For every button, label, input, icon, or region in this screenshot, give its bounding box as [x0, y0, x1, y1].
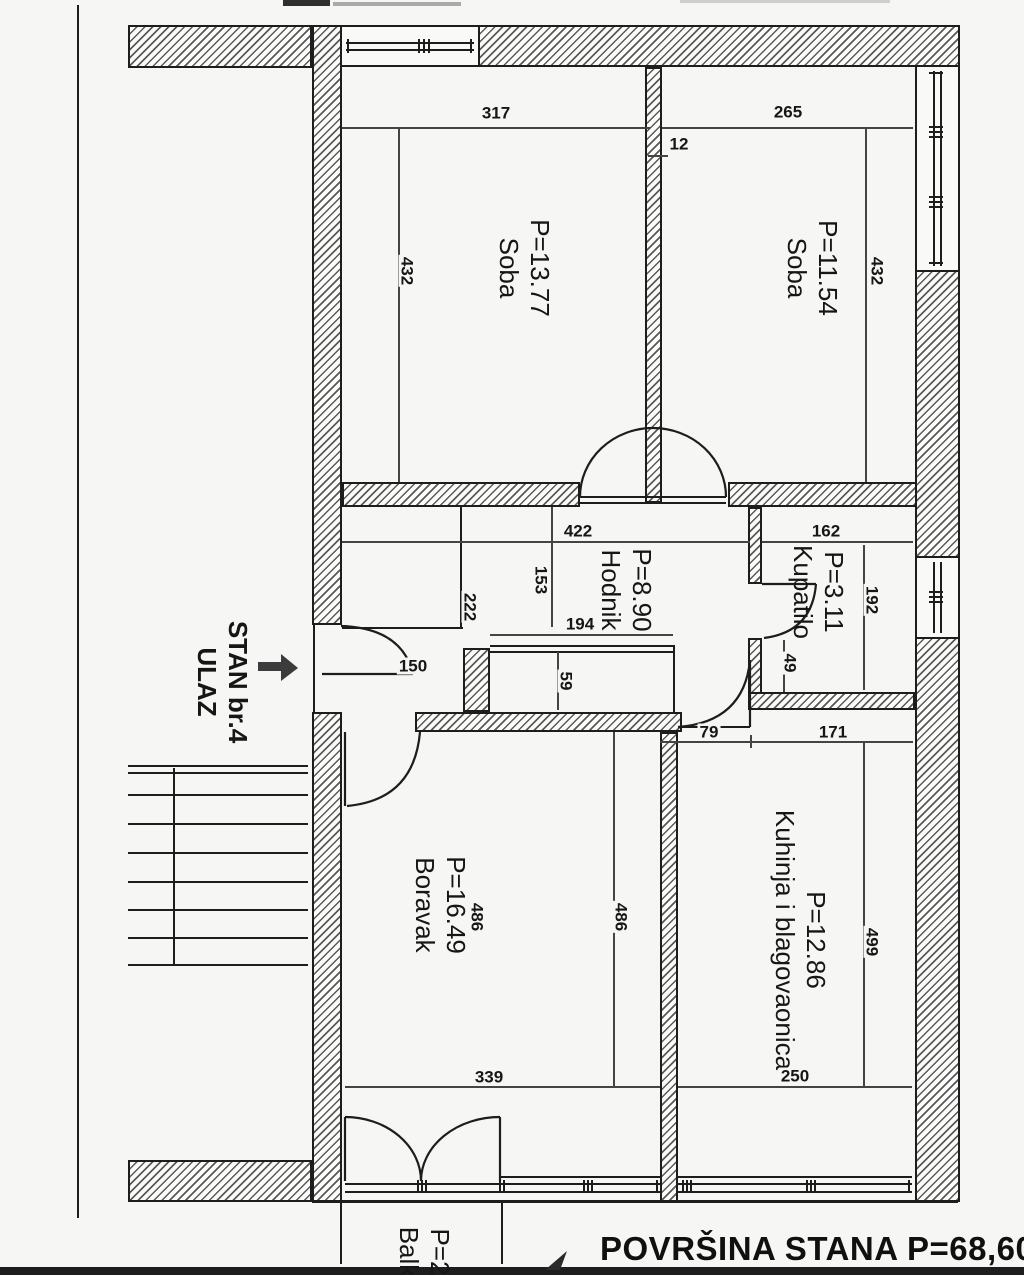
dim-niche-depth: 59 [558, 670, 575, 693]
room-area: P=8.90 [626, 548, 657, 631]
dim-hodnik-153: 153 [533, 564, 550, 596]
room-area: P=12.86 [800, 810, 831, 1070]
dim-kupatilo-49: 49 [782, 652, 799, 675]
balcony-area: P=2 [424, 1227, 455, 1275]
kuhinja-door-arc [678, 660, 750, 727]
room-name: Soba [493, 219, 524, 317]
room-label-hodnik: P=8.90 Hodnik [595, 548, 657, 631]
dim-boravak-depth-right: 486 [613, 901, 630, 933]
dim-boravak-width: 339 [473, 1069, 505, 1086]
dim-entrance-door: 150 [397, 658, 429, 675]
room-label-soba2: P=11.54 Soba [781, 220, 843, 316]
arch-opening-arc [580, 428, 726, 497]
room-area: P=16.49 [440, 856, 471, 954]
dim-soba2-width: 265 [772, 104, 804, 121]
dim-kuhinja-width: 250 [779, 1068, 811, 1085]
balcony-label: P=2 Balk [393, 1227, 455, 1275]
room-area: P=3.11 [818, 545, 849, 639]
footer-pointer-icon [545, 1251, 567, 1270]
entrance-label-line2: ULAZ [191, 621, 222, 743]
room-name: Soba [781, 220, 812, 316]
dim-soba2-depth: 432 [869, 255, 886, 287]
footer-area-statement: POVRŠINA STANA P=68,60 m2 [600, 1230, 1024, 1268]
dim-kupatilo-depth: 192 [864, 584, 881, 616]
dim-hodnik-222: 222 [462, 591, 479, 623]
dim-kupatilo-width: 162 [810, 523, 842, 540]
floor-plan-canvas: P=13.77 Soba P=11.54 Soba P=8.90 Hodnik … [0, 0, 1024, 1275]
doors-and-arcs-layer [0, 0, 1024, 1275]
room-area: P=11.54 [812, 220, 843, 316]
dim-boravak-depth-left: 486 [469, 901, 486, 933]
room-label-kuhinja: P=12.86 Kuhinja i blagovaonica [769, 810, 831, 1070]
dim-kuhinja-door: 79 [698, 724, 721, 741]
dim-hodnik-194: 194 [564, 616, 596, 633]
entrance-label-line1: STAN br.4 [222, 621, 253, 743]
room-label-boravak: P=16.49 Boravak [409, 856, 471, 954]
room-area: P=13.77 [524, 219, 555, 317]
dim-soba1-width: 317 [480, 105, 512, 122]
balcony-door-right-arc [421, 1117, 500, 1181]
entrance-arrow-icon [258, 654, 298, 681]
room-name: Kuhinja i blagovaonica [769, 810, 800, 1070]
dim-kuhinja-top: 171 [817, 724, 849, 741]
room-name: Boravak [409, 856, 440, 954]
dim-hodnik-width: 422 [562, 523, 594, 540]
entrance-label: STAN br.4 ULAZ [191, 621, 253, 743]
dim-soba1-depth: 432 [399, 255, 416, 287]
room-name: Kupatilo [787, 545, 818, 639]
boravak-door-arc [347, 732, 420, 806]
dim-kuhinja-depth: 499 [864, 926, 881, 958]
room-label-kupatilo: P=3.11 Kupatilo [787, 545, 849, 639]
room-name: Hodnik [595, 548, 626, 631]
room-label-soba1: P=13.77 Soba [493, 219, 555, 317]
balcony-door-left-arc [345, 1117, 421, 1181]
dim-partition-thickness: 12 [668, 136, 691, 153]
balcony-name: Balk [393, 1227, 424, 1275]
